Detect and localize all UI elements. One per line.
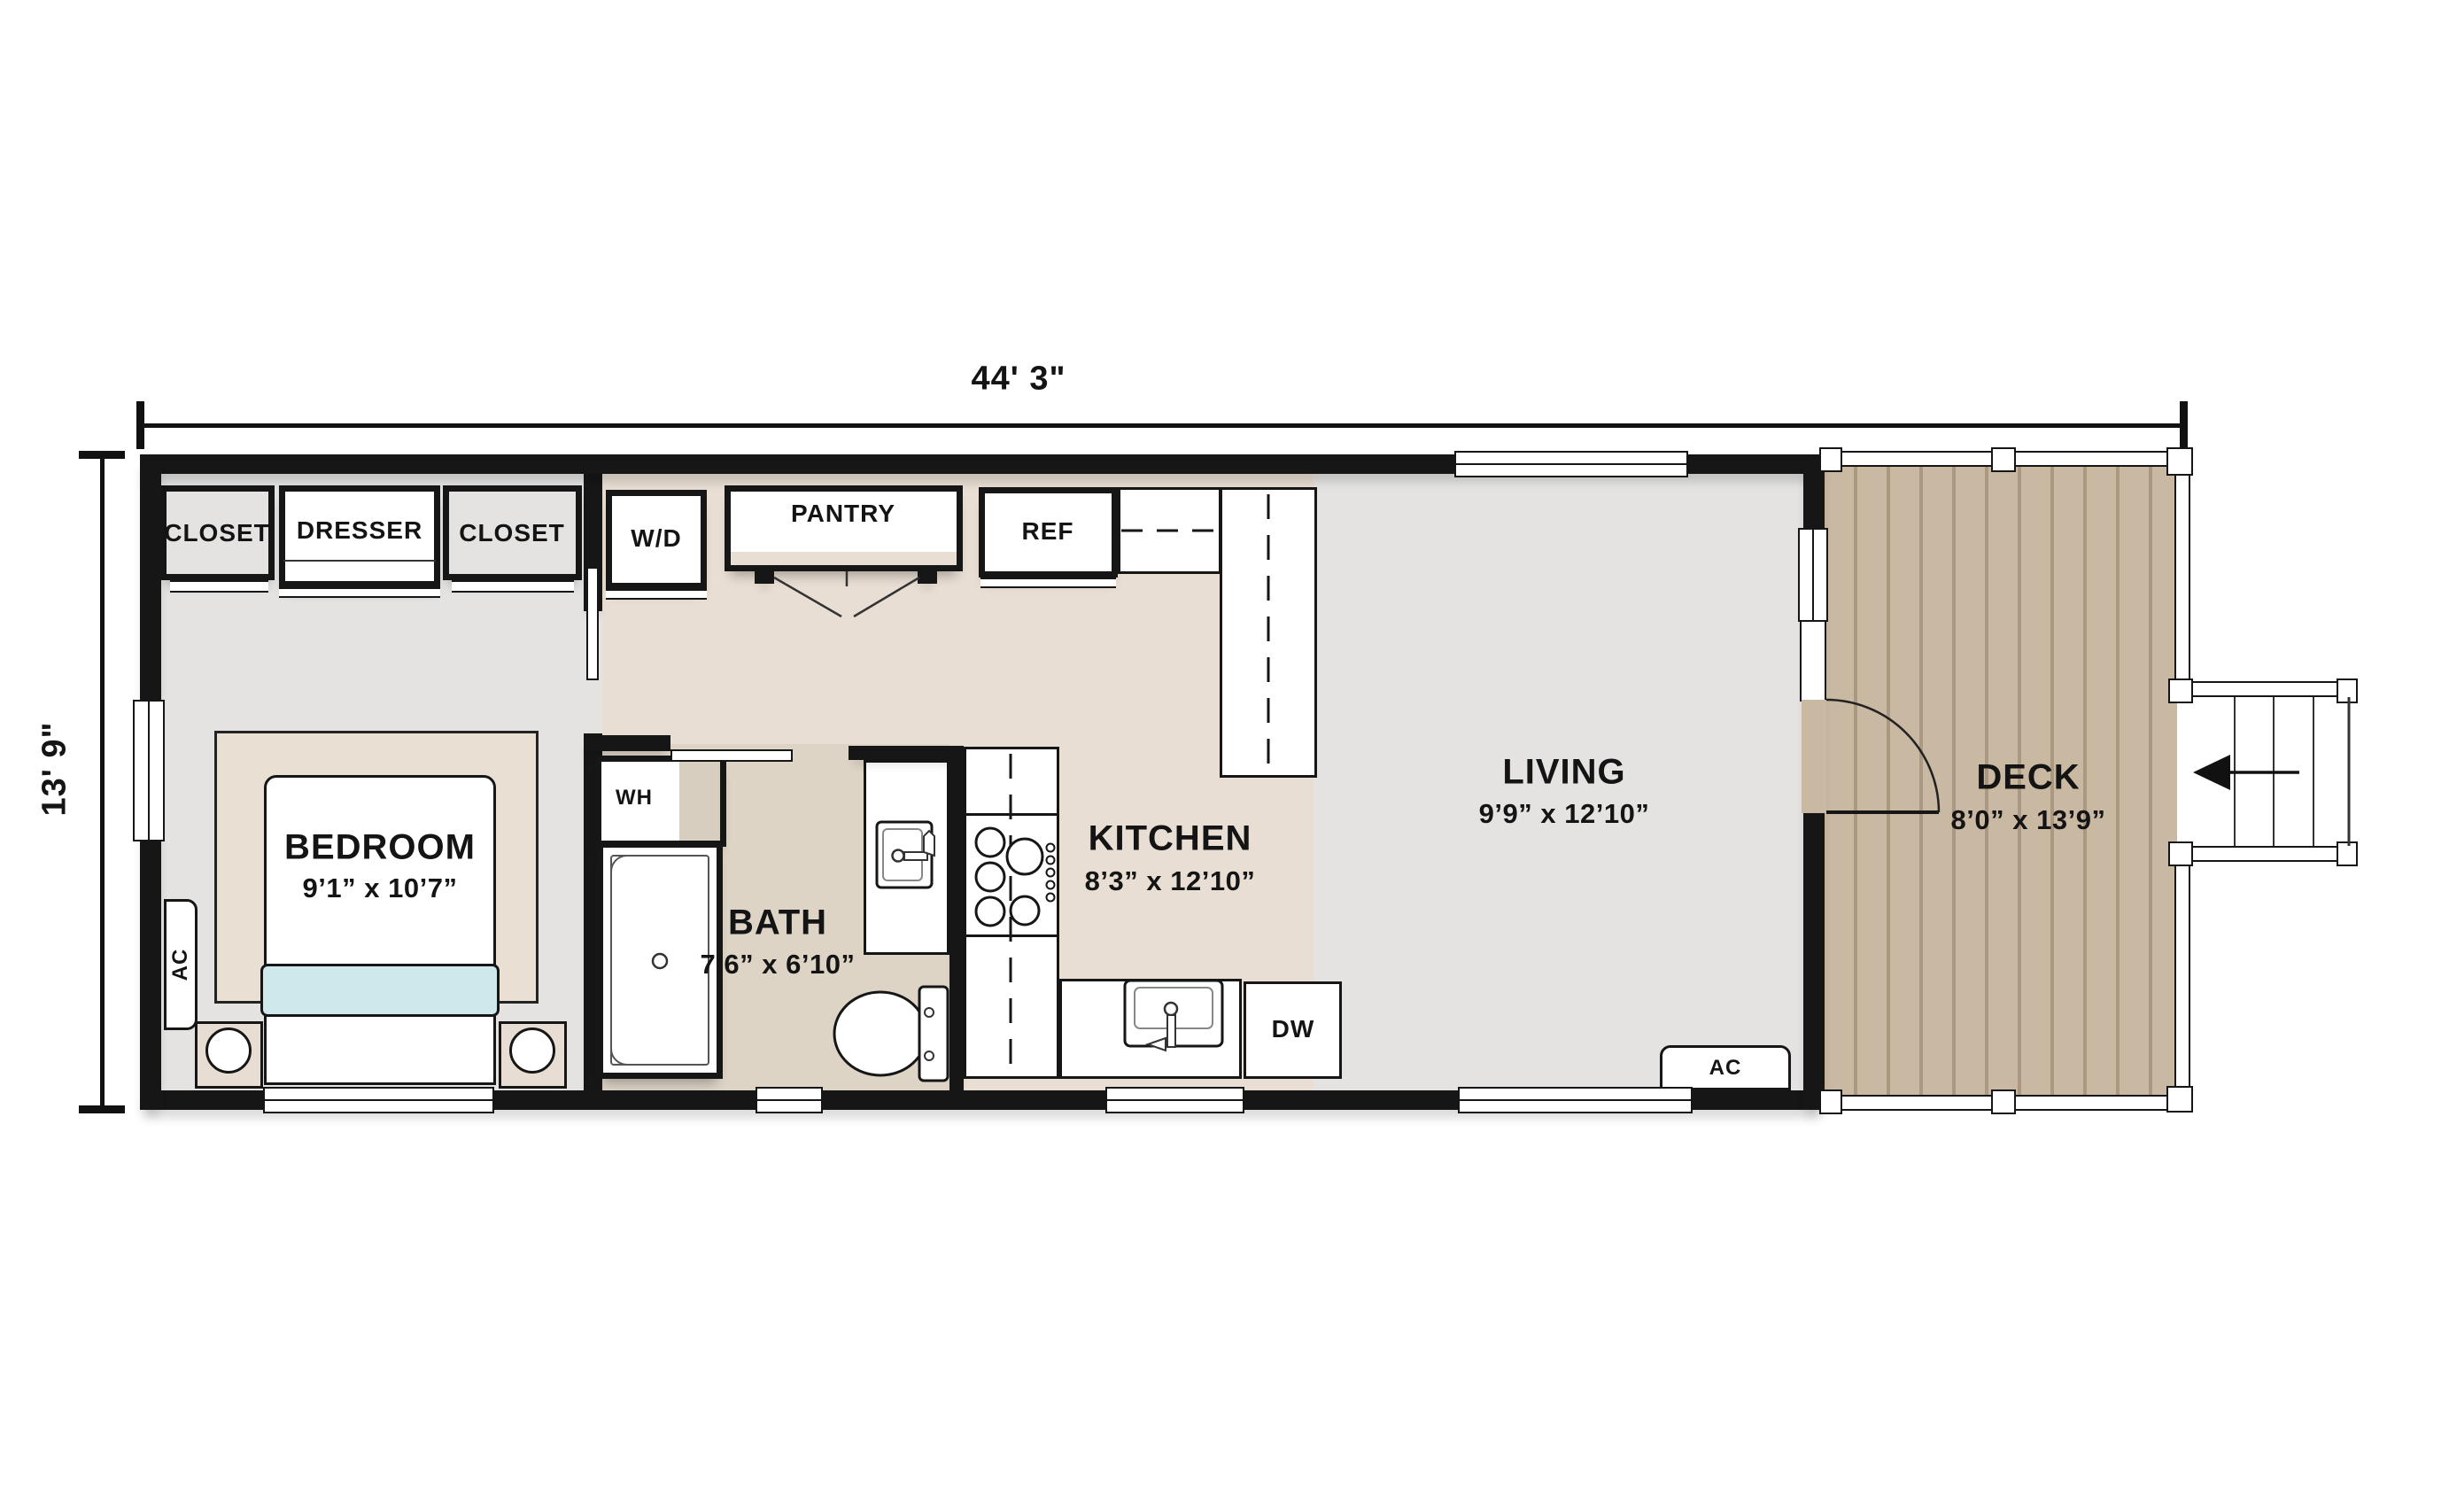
bath-sink-icon <box>877 822 934 888</box>
living-name: LIVING <box>1502 753 1625 793</box>
closet-left-label: CLOSET <box>164 519 270 547</box>
ac-bedroom-label: AC <box>168 949 193 981</box>
dishwasher-label: DW <box>1272 1015 1315 1043</box>
pantry-bifold-door-icon <box>774 571 919 616</box>
kitchen-name: KITCHEN <box>1089 819 1252 859</box>
bedroom-size: 9’1” x 10’7” <box>303 872 458 904</box>
bedroom-name: BEDROOM <box>284 828 476 868</box>
refrigerator-label: REF <box>1022 517 1074 546</box>
deck-name: DECK <box>1976 758 2080 798</box>
bath-size: 7’6” x 6’10” <box>701 949 856 981</box>
kitchen-sink-icon <box>1125 981 1222 1051</box>
entry-arrow-icon <box>2193 755 2299 790</box>
kitchen-size: 8’3” x 12’10” <box>1085 865 1256 897</box>
pantry-label: PANTRY <box>791 500 895 528</box>
dresser-label: DRESSER <box>297 516 422 545</box>
plan-symbols <box>0 0 2449 1512</box>
ac-living-label: AC <box>1709 1056 1742 1081</box>
closet-right-label: CLOSET <box>459 519 565 547</box>
bath-name: BATH <box>728 903 827 943</box>
living-size: 9’9” x 12’10” <box>1479 798 1650 830</box>
floor-plan: 44' 3" 13' 9" AC <box>0 0 2449 1512</box>
deck-size: 8’0” x 13’9” <box>1951 804 2106 836</box>
washer-dryer-label: W/D <box>631 524 681 553</box>
range-knobs-icon <box>1047 844 1055 902</box>
water-heater-label: WH <box>616 786 653 810</box>
shower-drain-icon <box>611 856 709 1065</box>
entry-door-icon <box>1826 700 1939 812</box>
toilet-icon <box>834 987 948 1081</box>
